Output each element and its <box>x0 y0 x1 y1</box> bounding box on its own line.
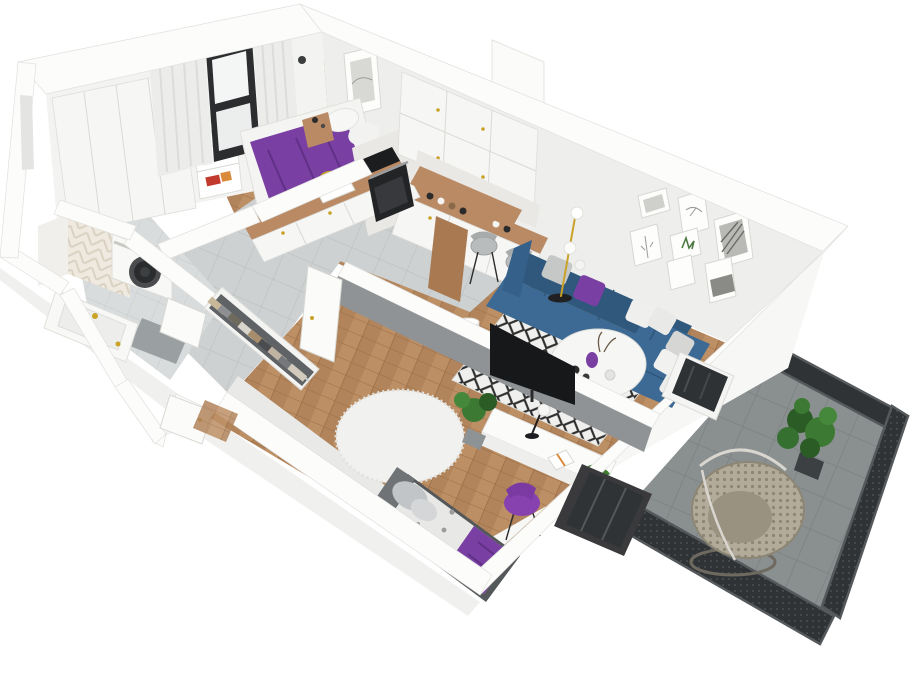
gold-faucet <box>92 313 98 319</box>
blanket-spot <box>449 509 454 514</box>
gold-handle <box>328 211 332 215</box>
jar <box>438 198 445 205</box>
nightstand-vase <box>312 117 318 123</box>
lamp-globe <box>575 260 585 270</box>
jar <box>460 208 467 215</box>
lamp-globe <box>571 207 583 219</box>
blanket-spot <box>442 528 447 533</box>
gold-knob <box>436 108 440 112</box>
nightstand-candle <box>321 124 325 128</box>
gold-handle <box>281 231 285 235</box>
plant-leaves <box>819 407 837 425</box>
gold-fixture <box>116 342 121 347</box>
wall-lamp <box>298 56 306 64</box>
plant-leaves <box>777 427 799 449</box>
lamp-globe <box>564 242 576 254</box>
machine-door-center <box>140 267 150 277</box>
table-vase-purple <box>586 352 598 368</box>
gold-knob <box>481 127 485 131</box>
kids-door-handle <box>310 316 314 320</box>
wall-art-print <box>350 57 375 105</box>
apartment-3d-plan <box>0 0 920 700</box>
gold-handle <box>428 216 432 220</box>
bar-chair-seat <box>471 237 497 255</box>
west-window-slit <box>20 95 34 170</box>
window-glass <box>212 51 249 104</box>
table-dish <box>605 370 615 380</box>
gold-knob <box>481 175 485 179</box>
egg-chair-seat <box>708 491 772 543</box>
kids-room-door-leaf <box>300 266 342 362</box>
plant-leaves <box>479 393 497 411</box>
desk-lamp-globe <box>538 404 550 416</box>
plant-leaves <box>794 398 810 414</box>
lamp-base <box>548 294 572 303</box>
jar <box>449 203 456 210</box>
plant-leaves <box>800 438 820 458</box>
floor-plan-render <box>0 0 920 700</box>
plant-leaves <box>454 392 470 408</box>
